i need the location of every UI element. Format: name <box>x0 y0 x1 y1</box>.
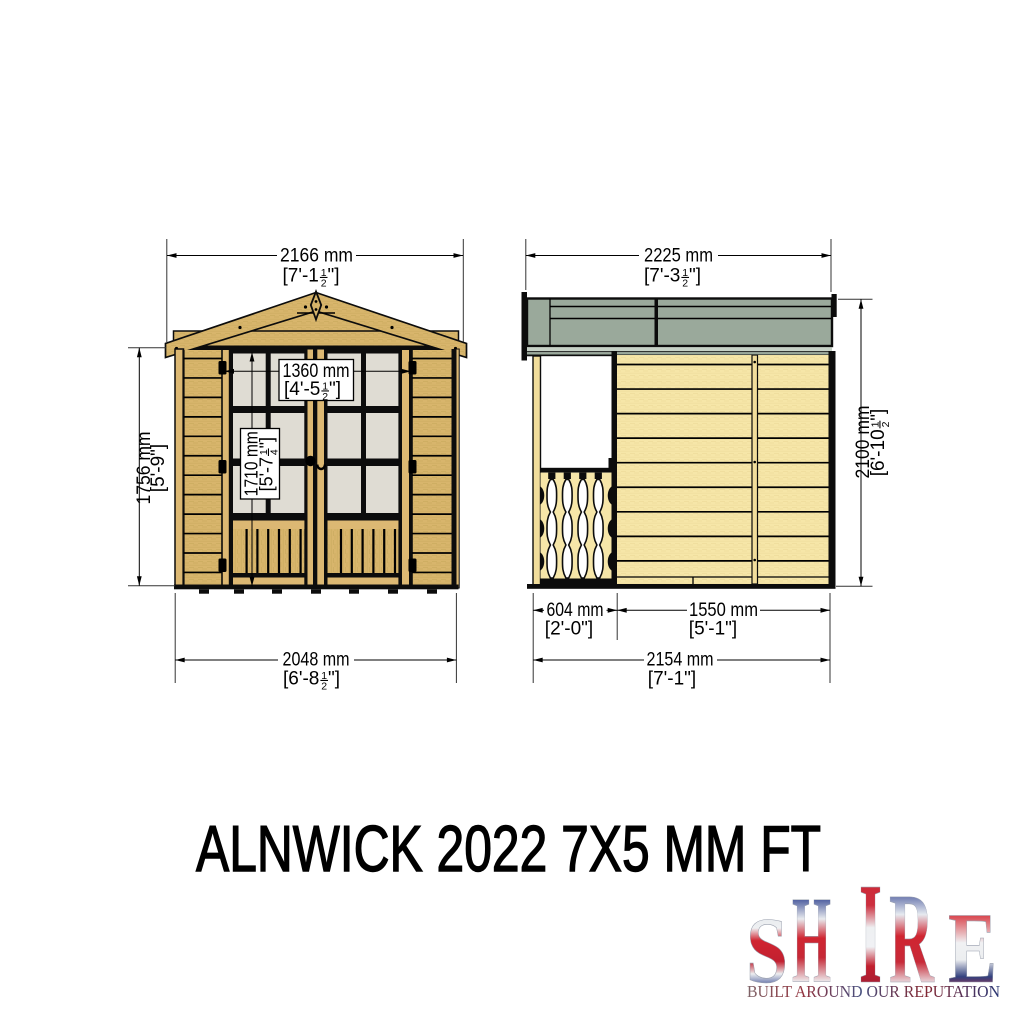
svg-text:"]: "] <box>689 266 701 287</box>
svg-text:[2'-0"]: [2'-0"] <box>545 619 593 640</box>
svg-text:[7'-1"]: [7'-1"] <box>648 669 696 690</box>
svg-text:"]: "] <box>328 266 340 287</box>
svg-text:2: 2 <box>321 277 327 289</box>
svg-text:2: 2 <box>880 421 892 427</box>
svg-text:ALNWICK 2022 7X5 MM FT: ALNWICK 2022 7X5 MM FT <box>196 812 821 885</box>
svg-text:2154 mm: 2154 mm <box>647 650 714 671</box>
svg-text:2: 2 <box>682 277 688 289</box>
svg-text:"]: "] <box>329 379 341 400</box>
svg-text:[5'-1"]: [5'-1"] <box>689 619 737 640</box>
svg-text:"]: "] <box>257 437 277 448</box>
svg-text:[5'-7: [5'-7 <box>257 457 277 491</box>
svg-text:[5'-9"]: [5'-9"] <box>148 444 169 492</box>
svg-text:2166 mm: 2166 mm <box>280 246 353 267</box>
svg-text:2048 mm: 2048 mm <box>283 650 350 671</box>
svg-text:2: 2 <box>321 680 327 692</box>
svg-text:[4'-5: [4'-5 <box>284 379 320 400</box>
svg-text:BUILT AROUND OUR REPUTATION: BUILT AROUND OUR REPUTATION <box>747 982 1000 1001</box>
svg-text:[7'-1: [7'-1 <box>283 266 319 287</box>
svg-text:2225 mm: 2225 mm <box>644 246 713 267</box>
svg-text:4: 4 <box>268 449 280 455</box>
svg-text:[6'-8: [6'-8 <box>283 669 319 690</box>
svg-text:[7'-3: [7'-3 <box>644 266 680 287</box>
svg-text:"]: "] <box>328 669 340 690</box>
svg-text:2: 2 <box>322 391 328 403</box>
svg-text:[6'-10: [6'-10 <box>868 429 889 476</box>
svg-text:"]: "] <box>868 409 889 421</box>
